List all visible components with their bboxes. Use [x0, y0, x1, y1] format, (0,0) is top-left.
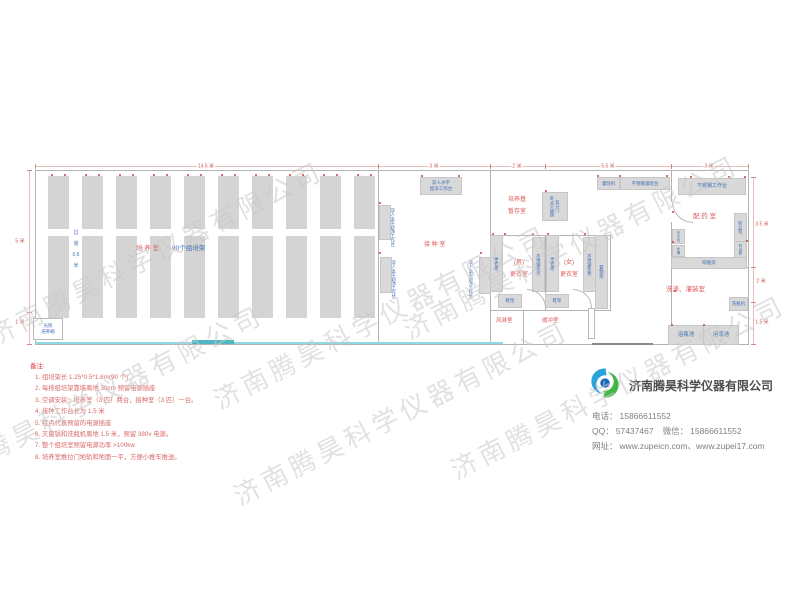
- power-outlet-dot: [666, 175, 668, 177]
- dimension-label: 14.5 米: [197, 163, 215, 170]
- dimension-label: 3.5 米: [754, 221, 769, 228]
- door-arc: [672, 202, 693, 223]
- wall-segment: [671, 170, 672, 202]
- bottle-drying-rack: 晾瓶架: [671, 257, 747, 269]
- bench-text-right: 双人水平超净工作台: [468, 256, 474, 302]
- bench-text-left-2: 双人水平超净工作台: [391, 256, 397, 302]
- culture-rack: [116, 236, 137, 318]
- power-outlet-dot: [744, 176, 746, 178]
- culture-rack: [286, 176, 307, 229]
- sterilizer: 双开门 卧式灭菌锅: [542, 192, 568, 221]
- power-outlet-dot: [64, 174, 66, 176]
- power-outlet-dot: [98, 174, 100, 176]
- sliding-door-track: [35, 342, 503, 344]
- power-outlet-dot: [728, 176, 730, 178]
- steel-filling-table: 不锈钢灌装台: [620, 177, 670, 190]
- note-item: 空调安装：培养室（3 匹）两台，接种室（3 匹）一台。: [42, 395, 360, 406]
- dimension-tick: [27, 312, 32, 313]
- culture-rack: [252, 236, 273, 318]
- company-block: 济南腾昊科学仪器有限公司 电话：15866611552 QQ：57437467 …: [588, 366, 800, 454]
- culture-rack: [286, 236, 307, 318]
- power-outlet-dot: [584, 233, 586, 235]
- dimension-line: [35, 166, 748, 167]
- power-outlet-dot: [690, 176, 692, 178]
- culture-rack: [320, 176, 341, 229]
- dimension-label: 2 米: [511, 163, 522, 170]
- notes-block: 备注: 组培架长 1.25*0.5*1.8m(90 个)每排组培架靠墙离地 30…: [30, 360, 360, 463]
- washing-filling-room-label: 洗涤、灌装室: [666, 286, 705, 294]
- dimension-tick: [27, 344, 32, 345]
- dimension-tick: [490, 164, 491, 169]
- company-phone: 电话：15866611552: [592, 409, 800, 424]
- culture-rack: [82, 236, 103, 318]
- dimension-tick: [751, 267, 756, 268]
- medicine-cabinet-1: 药品柜: [734, 213, 747, 242]
- power-outlet-dot: [336, 174, 338, 176]
- dimension-label: 1 米: [14, 319, 25, 326]
- power-outlet-dot: [132, 174, 134, 176]
- power-outlet-dot: [302, 174, 304, 176]
- wall-segment: [378, 170, 379, 345]
- power-outlet-dot: [85, 174, 87, 176]
- power-outlet-dot: [200, 174, 202, 176]
- medium-storage-label: 培养基 暂存室: [504, 194, 530, 218]
- power-outlet-dot: [746, 240, 748, 242]
- power-outlet-dot: [357, 174, 359, 176]
- dimension-tick: [545, 164, 546, 169]
- dimension-label: 3 米: [428, 163, 439, 170]
- buffer-room-label: 缓冲室: [542, 318, 559, 325]
- power-outlet-dot: [672, 241, 674, 243]
- sliding-door-track: [192, 340, 234, 344]
- bottom-opening: [592, 343, 653, 345]
- power-outlet-dot: [268, 174, 270, 176]
- rack-count-label: 90个组培架: [172, 245, 205, 253]
- note-item: 组培架长 1.25*0.5*1.8m(90 个): [42, 372, 360, 383]
- power-outlet-dot: [234, 174, 236, 176]
- power-outlet-dot: [421, 175, 423, 177]
- power-outlet-dot: [379, 202, 381, 204]
- bottle-washer: 洗瓶机: [729, 297, 748, 311]
- wardrobe-male: 更衣柜: [490, 235, 503, 292]
- dimension-line: [29, 170, 30, 344]
- medicine-cabinet-2: 药品柜: [734, 241, 747, 258]
- shoe-rack-female: 鞋架: [545, 294, 569, 308]
- culture-rack: [184, 176, 205, 229]
- power-outlet-dot: [221, 174, 223, 176]
- power-outlet-dot: [492, 233, 494, 235]
- culture-rack: [354, 236, 375, 318]
- shoe-rack-male: 鞋架: [498, 294, 522, 308]
- notes-list: 组培架长 1.25*0.5*1.8m(90 个)每排组培架靠墙离地 30cm 预…: [30, 372, 360, 463]
- culture-rack: [218, 236, 239, 318]
- door-panel: [588, 308, 595, 339]
- company-logo-icon: [588, 366, 622, 405]
- power-outlet-dot: [323, 174, 325, 176]
- dimension-tick: [671, 164, 672, 169]
- dimension-tick: [751, 302, 756, 303]
- power-outlet-dot: [671, 324, 673, 326]
- clean-bench-top: 双人水平 超净工作台: [420, 177, 462, 195]
- note-item: 接种工作台长为 1.5 米: [42, 406, 360, 417]
- air-shower-label: 风淋室: [496, 318, 513, 325]
- note-item: 每排组培架靠墙离地 30cm 预留电源插座: [42, 383, 360, 394]
- culture-rack: [252, 176, 273, 229]
- company-qq-wechat: QQ：57437467 微信：15866611552: [592, 424, 800, 439]
- dimension-tick: [751, 344, 756, 345]
- steel-bench-male: 不锈钢条凳: [532, 237, 545, 292]
- male-changing-label: (男) 更衣室: [506, 257, 532, 281]
- power-outlet-dot: [289, 174, 291, 176]
- wall-segment: [610, 235, 611, 311]
- floor-plan-page: 双人水平 超净工作台更衣柜不锈钢条凳更衣柜不锈钢条凳置物架鞋架鞋架双开门 卧式灭…: [0, 0, 800, 600]
- power-outlet-dot: [480, 252, 482, 254]
- wall-segment: [523, 310, 524, 345]
- wall-segment: [748, 170, 749, 345]
- wall-segment: [35, 170, 749, 171]
- power-outlet-dot: [504, 233, 506, 235]
- culture-rack: [116, 176, 137, 229]
- power-outlet-dot: [119, 174, 121, 176]
- dimension-tick: [35, 164, 36, 169]
- inoculation-room-label: 接 种 室: [424, 242, 445, 250]
- note-item: 灭菌锅和洗瓶机离地 1.5 米，预留 380v 电源。: [42, 429, 360, 440]
- power-outlet-dot: [597, 175, 599, 177]
- bottle-soak-pool-1: 泡瓶池: [668, 325, 704, 345]
- power-outlet-dot: [532, 233, 534, 235]
- power-outlet-dot: [51, 174, 53, 176]
- power-outlet-dot: [703, 324, 705, 326]
- dimension-label: 2 米: [755, 278, 766, 285]
- note-item: 整个组培室预留电源功率 >100kw: [42, 440, 360, 451]
- storage-rack: 置物架: [595, 235, 608, 309]
- female-changing-label: (女) 更衣室: [556, 257, 582, 281]
- sink: 水槽: [672, 245, 685, 257]
- culture-rack: [82, 176, 103, 229]
- steel-worktable: 不锈钢工作台: [678, 178, 746, 195]
- power-outlet-dot: [153, 174, 155, 176]
- culture-rack: [354, 176, 375, 229]
- dimension-tick: [27, 170, 32, 171]
- dimension-label: 3 米: [703, 163, 714, 170]
- dimension-tick: [378, 164, 379, 169]
- bottle-soak-pool-2: 泡瓶池: [703, 325, 739, 345]
- dimension-label: 1.5 米: [754, 319, 769, 326]
- power-outlet-dot: [545, 190, 547, 192]
- cultivation-room-label: 培 养 室: [136, 245, 159, 253]
- dispensary-label: 配 药 室: [693, 213, 716, 221]
- culture-rack: [218, 176, 239, 229]
- dimension-tick: [748, 164, 749, 169]
- culture-rack: [320, 236, 341, 318]
- light-incubator: 光照 培养箱: [33, 318, 63, 340]
- dimension-tick: [751, 177, 756, 178]
- power-outlet-dot: [674, 290, 676, 292]
- filling-machine: 灌装机: [597, 177, 620, 190]
- power-outlet-dot: [166, 174, 168, 176]
- bench-text-left-1: 双人水平超净工作台: [390, 204, 396, 250]
- power-outlet-dot: [547, 233, 549, 235]
- power-outlet-dot: [619, 175, 621, 177]
- culture-rack: [48, 176, 69, 229]
- culture-rack: [48, 236, 69, 318]
- aisle-label: 过 道 0.6 米: [70, 228, 82, 272]
- dimension-label: 5.5 米: [600, 163, 615, 170]
- power-outlet-dot: [379, 252, 381, 254]
- note-item: 培养室推拉门地轨和地面一平，方便小推车推送。: [42, 452, 360, 463]
- note-item: 红点代表预留的电源插座: [42, 418, 360, 429]
- power-outlet-dot: [370, 174, 372, 176]
- floor-plan: 双人水平 超净工作台更衣柜不锈钢条凳更衣柜不锈钢条凳置物架鞋架鞋架双开门 卧式灭…: [0, 0, 800, 600]
- power-outlet-dot: [255, 174, 257, 176]
- power-outlet-dot: [458, 175, 460, 177]
- company-name: 济南腾昊科学仪器有限公司: [629, 377, 773, 394]
- dimension-label: 5 米: [14, 238, 25, 245]
- company-website: 网址：www.zupeicn.com、www.zupei17.com: [592, 439, 800, 454]
- notes-title: 备注:: [30, 360, 360, 370]
- culture-rack: [150, 176, 171, 229]
- power-outlet-dot: [187, 174, 189, 176]
